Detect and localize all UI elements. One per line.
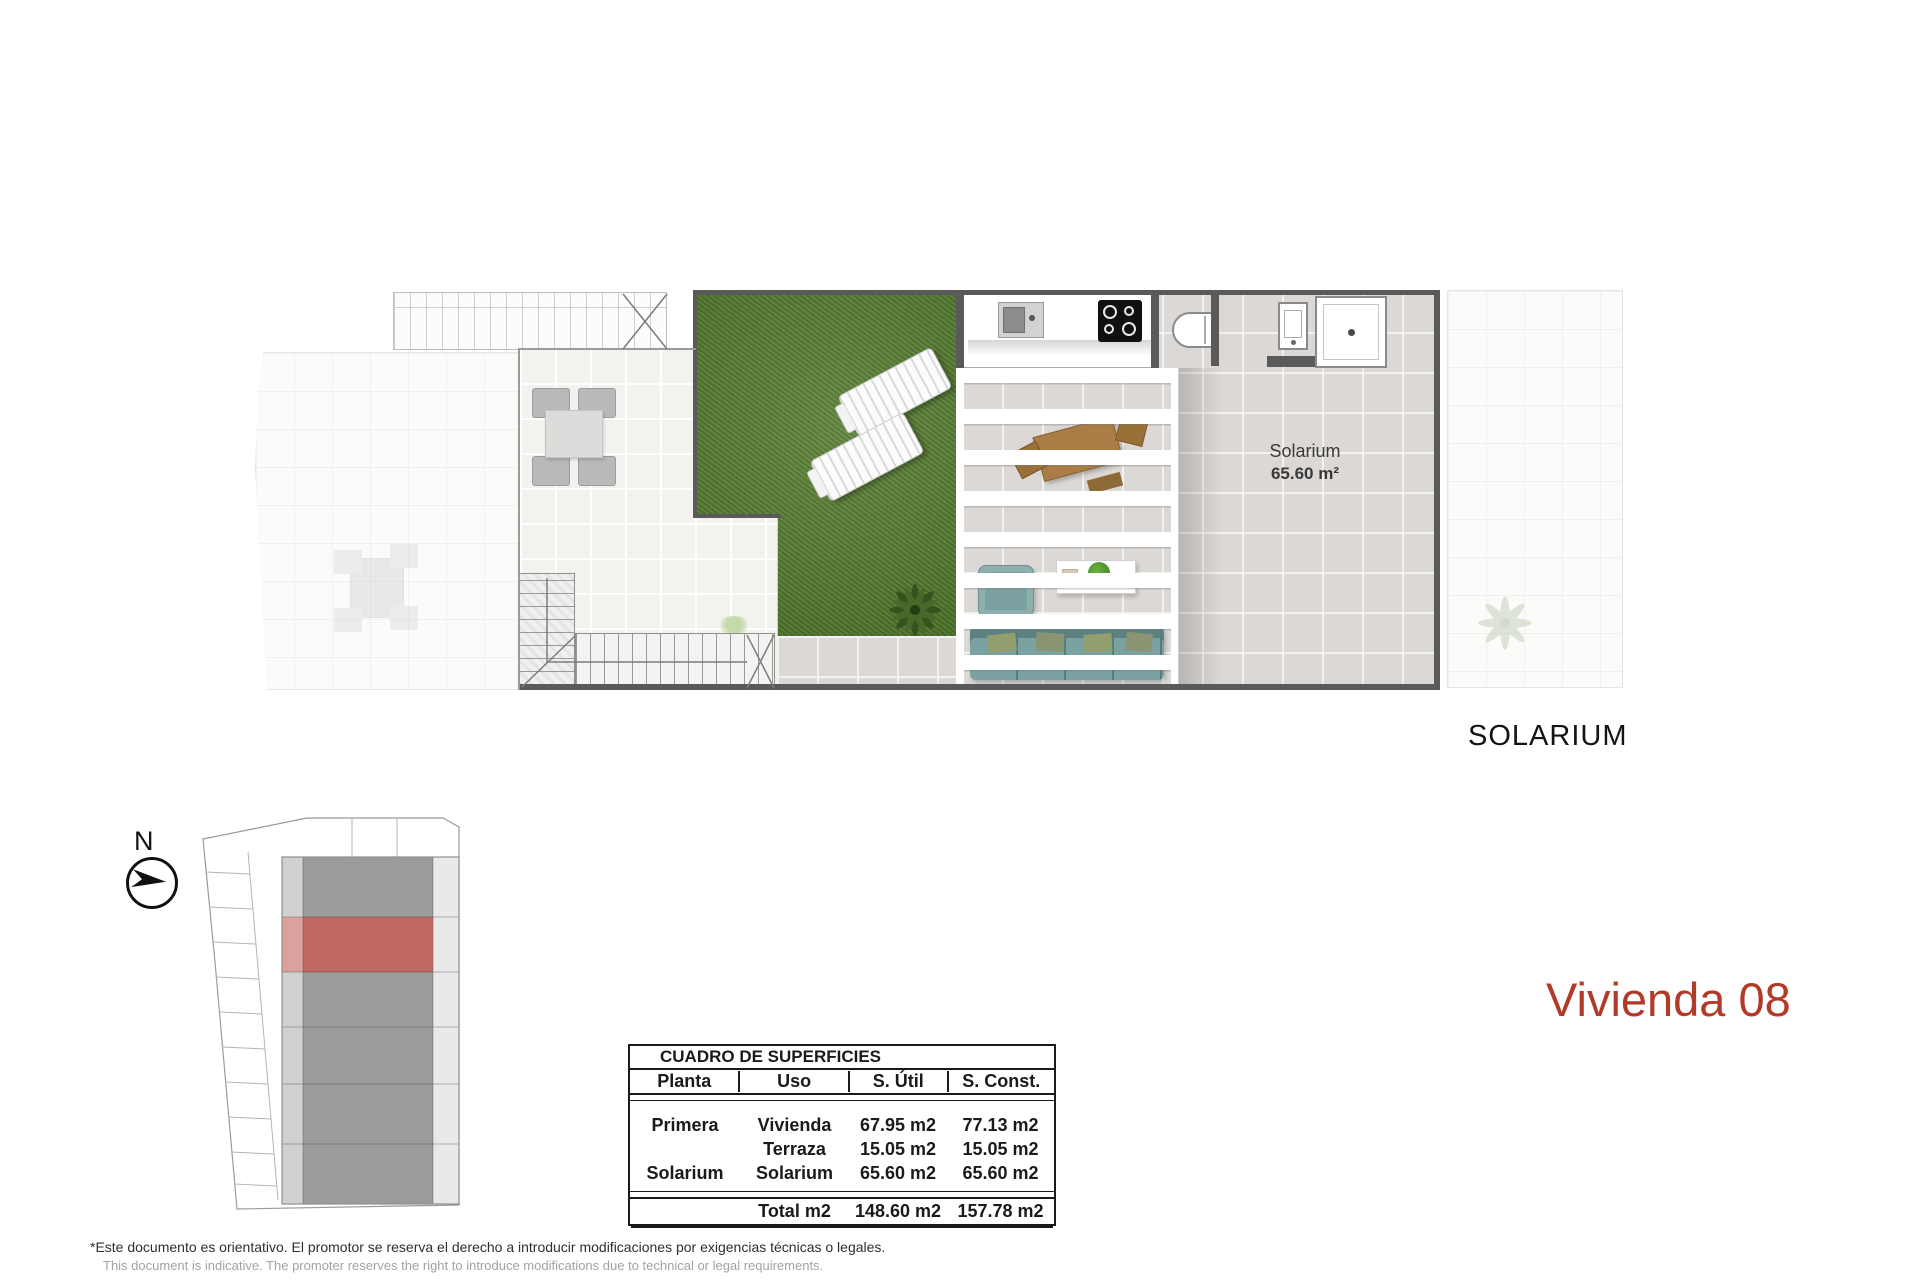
cell-uso: Terraza [740,1139,849,1160]
col-header-const: S. Const. [947,1071,1054,1092]
cell-util: 65.60 m2 [849,1163,947,1184]
plan-caption: SOLARIUM [1468,720,1627,753]
cell-uso: Vivienda [740,1115,849,1136]
table-row: Primera Vivienda 67.95 m2 77.13 m2 [630,1113,1054,1137]
surface-table-header: Planta Uso S. Útil S. Const. [630,1070,1054,1093]
disclaimer-en: This document is indicative. The promote… [103,1258,823,1273]
total-const: 157.78 m2 [947,1201,1054,1222]
col-header-uso: Uso [738,1071,847,1092]
total-separator [630,1191,1054,1199]
disclaimer-es: *Este documento es orientativo. El promo… [90,1239,885,1255]
cell-const: 65.60 m2 [947,1163,1054,1184]
highlight-row-light [282,917,303,972]
cell-planta: Primera [630,1115,740,1136]
header-separator [630,1093,1054,1101]
compass-north-label: N [134,826,154,857]
cell-util: 67.95 m2 [849,1115,947,1136]
floor-plan: Solarium 65.60 m² [250,288,1630,692]
plan-line-details [250,288,1630,692]
cell-planta: Solarium [630,1163,740,1184]
col-header-planta: Planta [630,1071,738,1092]
north-arrow-icon [129,860,169,900]
surface-table-title: CUADRO DE SUPERFICIES [630,1046,1054,1070]
table-total-row: Total m2 148.60 m2 157.78 m2 [630,1199,1054,1224]
col-header-util: S. Útil [848,1071,947,1092]
cell-const: 77.13 m2 [947,1115,1054,1136]
surface-table: CUADRO DE SUPERFICIES Planta Uso S. Útil… [628,1044,1056,1226]
table-row: Terraza 15.05 m2 15.05 m2 [630,1137,1054,1161]
table-row: Solarium Solarium 65.60 m2 65.60 m2 [630,1161,1054,1185]
total-label: Total m2 [740,1201,849,1222]
cell-const: 15.05 m2 [947,1139,1054,1160]
cell-uso: Solarium [740,1163,849,1184]
highlight-row [303,917,433,972]
cell-util: 15.05 m2 [849,1139,947,1160]
site-plan [170,812,470,1220]
total-util: 148.60 m2 [849,1201,947,1222]
dwelling-title: Vivienda 08 [1546,972,1791,1027]
brochure-page: Solarium 65.60 m² SOLARIUM N [0,0,1920,1280]
